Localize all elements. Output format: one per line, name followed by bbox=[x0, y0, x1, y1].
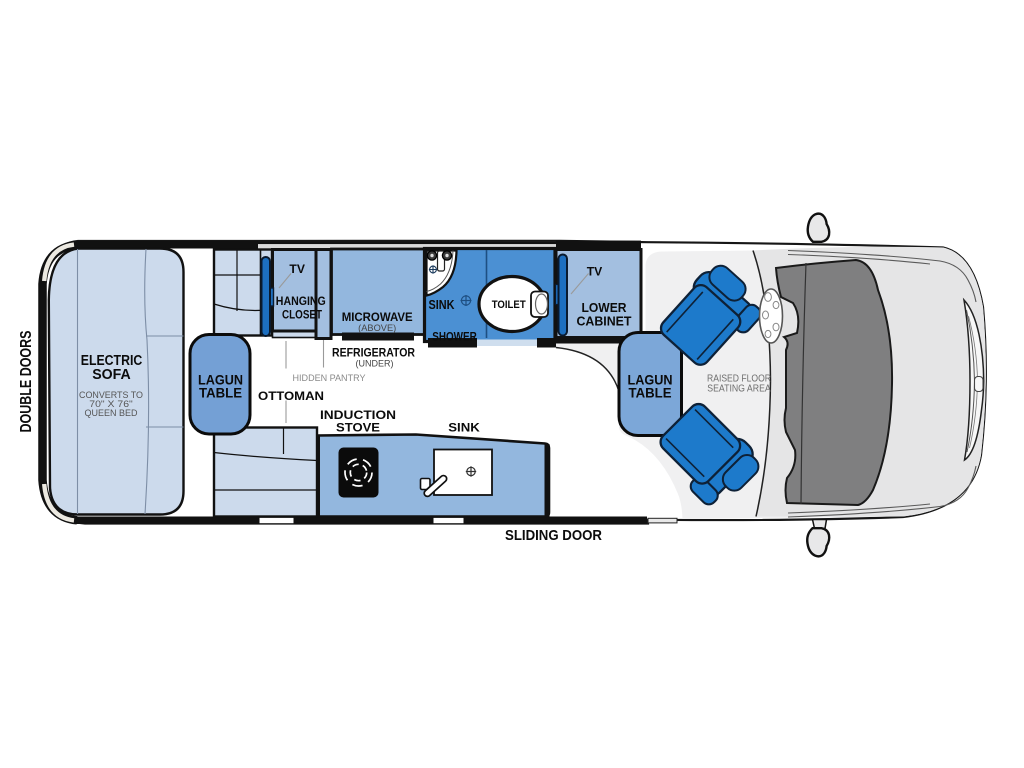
svg-text:TV: TV bbox=[587, 264, 603, 278]
svg-text:TABLE: TABLE bbox=[629, 385, 672, 400]
svg-text:SEATING AREA: SEATING AREA bbox=[707, 384, 771, 395]
svg-text:STOVE: STOVE bbox=[336, 420, 380, 434]
svg-text:(ABOVE): (ABOVE) bbox=[358, 323, 396, 333]
svg-text:SLIDING DOOR: SLIDING DOOR bbox=[505, 527, 602, 544]
svg-text:(UNDER): (UNDER) bbox=[356, 358, 394, 368]
svg-text:DOUBLE DOORS: DOUBLE DOORS bbox=[18, 331, 35, 433]
svg-text:TABLE: TABLE bbox=[199, 385, 242, 400]
svg-text:HANGING: HANGING bbox=[276, 294, 326, 308]
svg-text:CLOSET: CLOSET bbox=[282, 307, 323, 321]
svg-text:HIDDEN PANTRY: HIDDEN PANTRY bbox=[293, 373, 366, 383]
svg-text:OTTOMAN: OTTOMAN bbox=[258, 389, 324, 403]
svg-text:SINK: SINK bbox=[429, 297, 456, 312]
svg-text:TOILET: TOILET bbox=[492, 299, 526, 311]
svg-text:SINK: SINK bbox=[448, 421, 480, 435]
svg-text:SHOWER: SHOWER bbox=[432, 329, 477, 343]
svg-text:SOFA: SOFA bbox=[92, 367, 131, 383]
svg-text:TV: TV bbox=[289, 264, 305, 276]
svg-text:QUEEN BED: QUEEN BED bbox=[85, 408, 138, 418]
svg-text:CABINET: CABINET bbox=[577, 314, 632, 329]
